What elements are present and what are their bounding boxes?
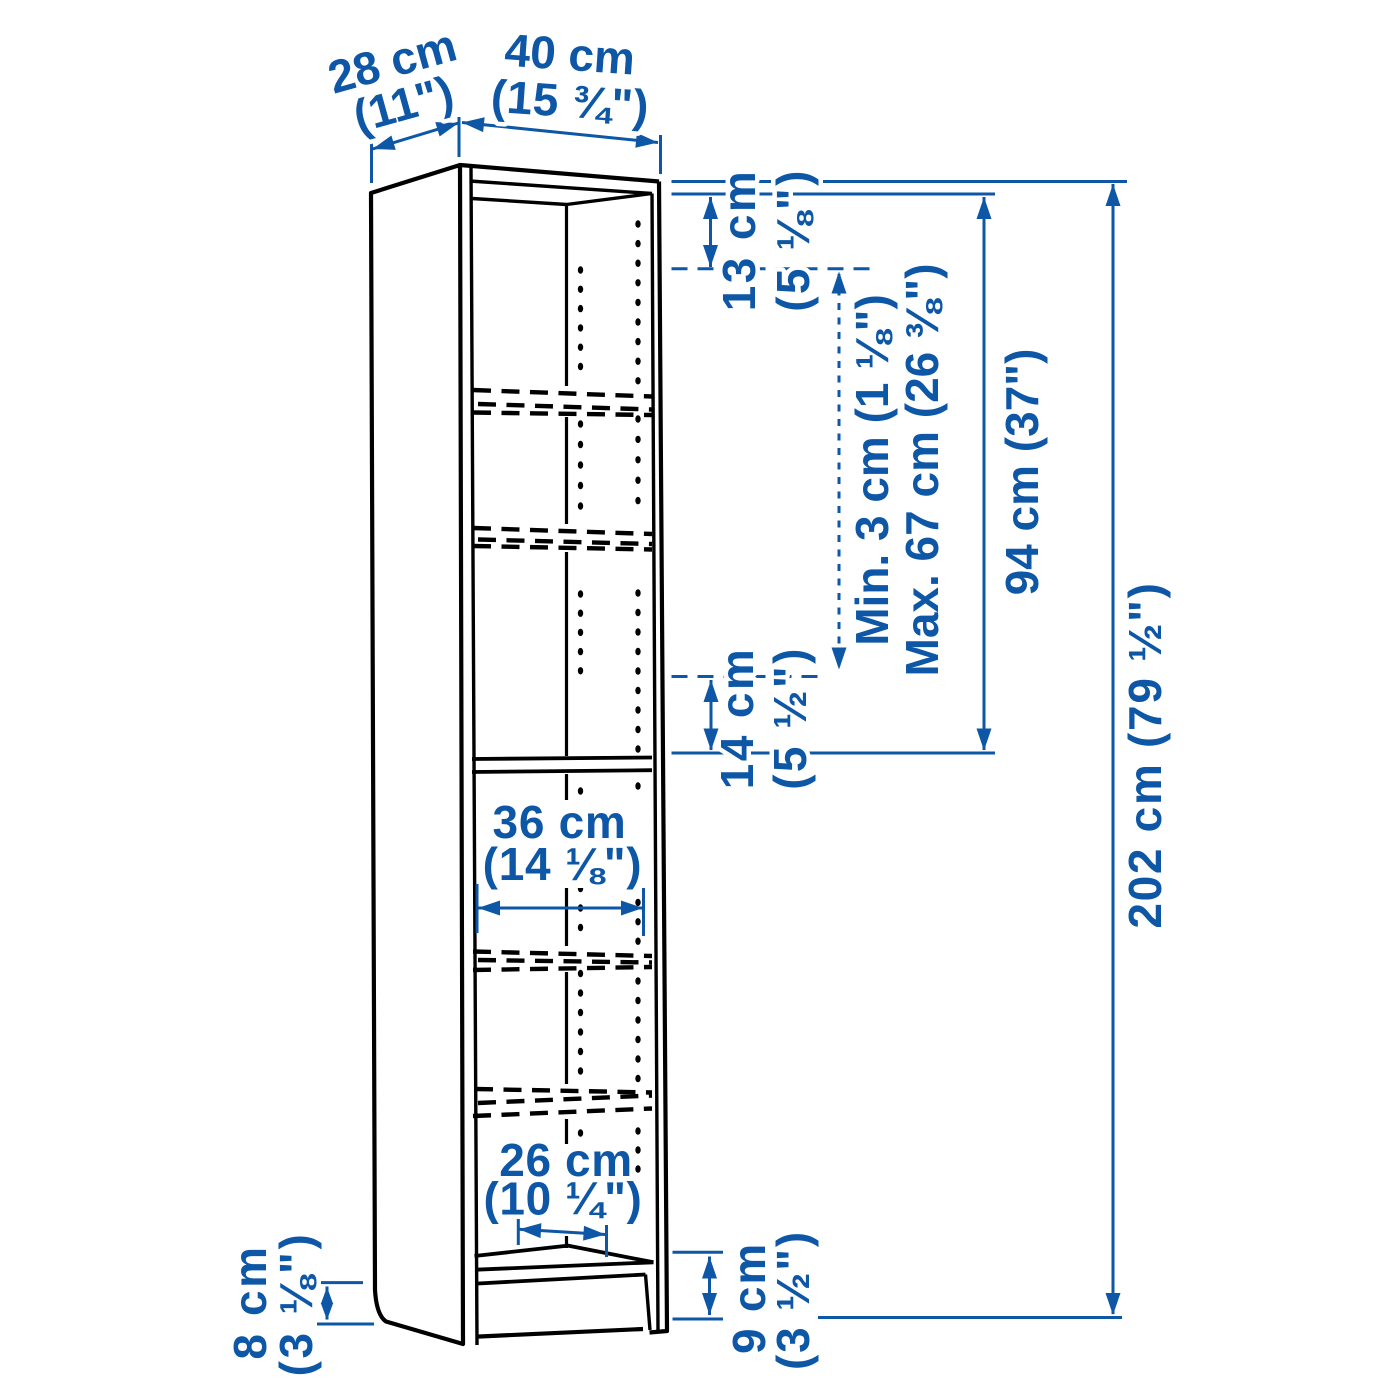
svg-text:202 cm (79 ½"): 202 cm (79 ½") xyxy=(1119,581,1171,928)
svg-text:Max. 67 cm (26 ⅜"): Max. 67 cm (26 ⅜") xyxy=(896,263,948,676)
svg-text:(14 ⅛"): (14 ⅛") xyxy=(483,838,643,890)
svg-text:(5 ½"): (5 ½") xyxy=(764,646,816,790)
svg-text:(5 ⅛"): (5 ⅛") xyxy=(767,168,819,312)
svg-text:13 cm: 13 cm xyxy=(713,169,765,311)
svg-text:(3 ⅛"): (3 ⅛") xyxy=(270,1232,322,1377)
svg-text:(3 ½"): (3 ½") xyxy=(767,1230,819,1370)
svg-text:14 cm: 14 cm xyxy=(711,647,763,789)
svg-text:(10 ¼"): (10 ¼") xyxy=(484,1173,643,1225)
svg-text:8 cm: 8 cm xyxy=(224,1244,276,1359)
svg-text:(15 ¾"): (15 ¾") xyxy=(489,70,651,133)
svg-text:Min. 3 cm (1 ⅛"): Min. 3 cm (1 ⅛") xyxy=(846,294,898,646)
svg-text:94 cm (37"): 94 cm (37") xyxy=(996,349,1048,596)
